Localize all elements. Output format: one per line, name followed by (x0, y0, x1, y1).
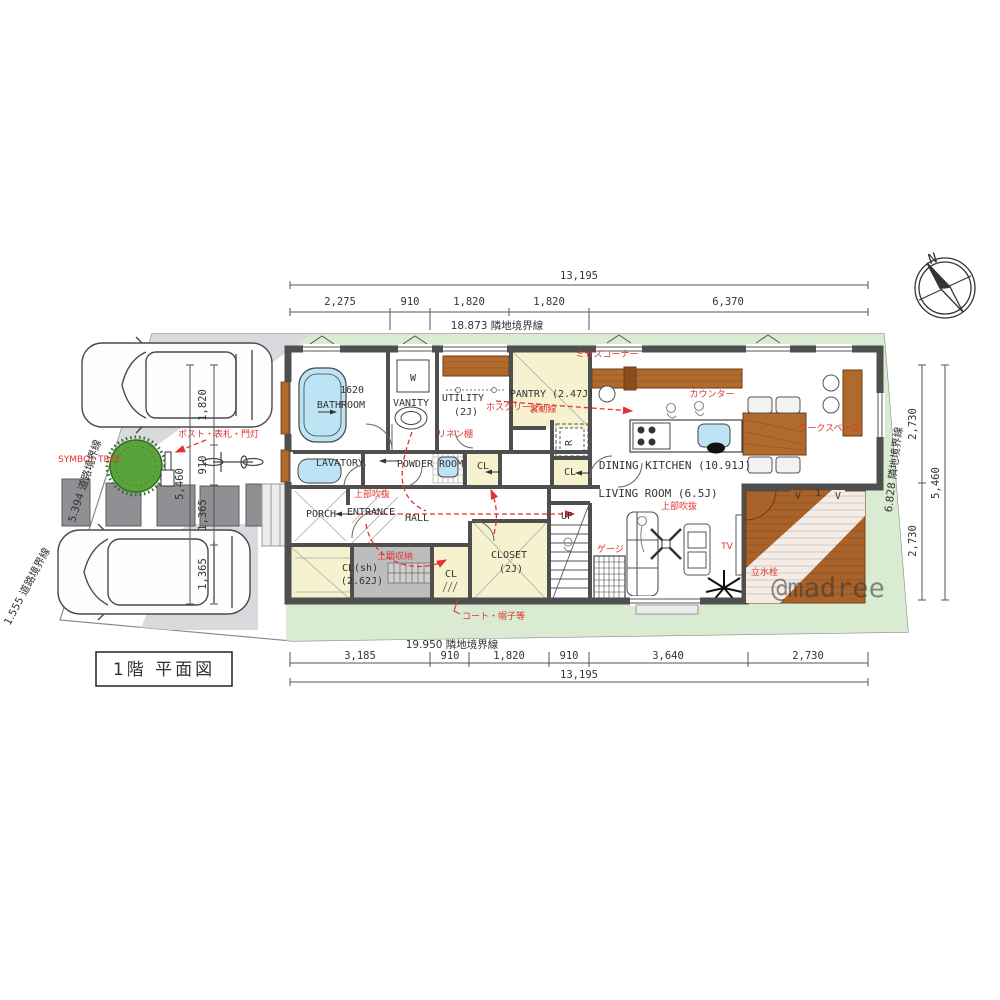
bottom-dims: 19.950 隣地境界線 3,185 910 1,820 910 3,640 2… (290, 638, 868, 686)
car-top (82, 337, 272, 433)
bottom-seg4: 3,640 (652, 650, 684, 662)
utility-shelf (443, 356, 509, 376)
watermark: @madree (771, 573, 885, 604)
drawing-title-text: 1階 平面図 (113, 660, 215, 680)
porch-label: PORCH (306, 509, 336, 520)
utility-label: UTILITY (442, 393, 484, 404)
mrs-chair (599, 386, 615, 402)
dining-table (743, 413, 806, 455)
left-dim-seg1: 910 (197, 456, 209, 475)
closet-label: CLOSET (491, 550, 527, 561)
top-dims: 13,195 2,275 910 1,820 1,820 6,370 18.87… (290, 270, 868, 332)
car-bottom (58, 524, 250, 620)
bathroom-label: BATHROOM (317, 400, 365, 411)
left-dim-seg2: 1,365 (197, 499, 209, 531)
left-dim-overall: 5,460 (174, 468, 186, 500)
kettle (707, 443, 725, 454)
west-louvers (281, 382, 289, 482)
clsh-size: (2.62J) (341, 576, 383, 587)
coat-hat-label: コート・帽子等 (462, 610, 525, 622)
void-entrance-label: 上部吹抜 (354, 488, 390, 500)
doma-storage-label: 土間収納 (377, 550, 413, 562)
floor-plan-canvas: SYMBOL TREE ポスト・表札・門灯 5.394 道路境界線 1.555 … (0, 0, 1000, 1000)
bottom-seg0: 3,185 (344, 650, 376, 662)
bathroom-size: 1620 (340, 385, 364, 396)
deck-mark-0: V (795, 491, 801, 502)
top-overall: 13,195 (560, 270, 598, 282)
terrace-step (636, 605, 698, 614)
right-overall: 5,460 (930, 467, 942, 499)
back-line-label: 裏動線 (529, 403, 556, 415)
top-seg0: 2,275 (324, 296, 356, 308)
living-label: LIVING ROOM (6.5J) (598, 487, 717, 500)
deck-mark-2: V (835, 491, 841, 502)
bottom-seg2: 1,820 (493, 650, 525, 662)
mrs-corner-label: ミセスコーナー (575, 349, 638, 360)
right-seg1: 2,730 (907, 525, 919, 557)
cl-coat-label: CL (445, 569, 457, 580)
counter-label: カウンター (689, 389, 734, 400)
washer-label: W (410, 373, 417, 384)
hall-label: HALL (405, 513, 429, 524)
workspace-label: ワークスペース (798, 423, 860, 434)
pantry-label: PANTRY (2.47J) (510, 389, 594, 400)
lavatory-label: LAVATORY (316, 458, 364, 469)
mrs-counter (592, 369, 742, 388)
top-seg2: 1,820 (453, 296, 485, 308)
clsh-label: CL(sh) (342, 563, 378, 574)
sofa (627, 512, 658, 596)
top-seg4: 6,370 (712, 296, 744, 308)
stairs-up-label: UP (561, 511, 573, 522)
fridge-label: R (564, 439, 575, 446)
closet-size: (2J) (499, 564, 523, 575)
void-living-label: 上部吹抜 (661, 500, 697, 512)
bottom-seg5: 2,730 (792, 650, 824, 662)
vanity-basin (395, 407, 427, 429)
deck-mark-1: 1 (815, 488, 821, 499)
approach-steps (262, 484, 288, 546)
road-boundary-lower: 1.555 道路境界線 (1, 545, 53, 627)
top-boundary: 18.873 隣地境界線 (451, 319, 544, 332)
workspace-stool-1 (823, 375, 839, 391)
bottom-seg1: 910 (441, 650, 460, 662)
tv-label: TV (720, 542, 733, 552)
right-seg0: 2,730 (907, 408, 919, 440)
compass: N (915, 250, 975, 318)
drawing-title: 1階 平面図 (96, 652, 232, 686)
left-dim-seg3: 1,365 (197, 558, 209, 590)
cl-powder-label: CL (477, 461, 489, 472)
top-seg3: 1,820 (533, 296, 565, 308)
cl-fridge-label: CL (564, 467, 576, 478)
cage-label: ゲージ (597, 543, 624, 555)
dining-label: DINING KITCHEN (10.91J) (599, 459, 751, 472)
vanity-label: VANITY (393, 398, 429, 409)
linen-shelf-label: リネン棚 (437, 428, 473, 440)
bottom-seg3: 910 (560, 650, 579, 662)
entrance-label: ENTRANCE (347, 507, 395, 518)
kitchen-island (630, 420, 742, 454)
coffee-table (684, 524, 710, 575)
powder-label: POWDER ROOM (397, 459, 463, 470)
bottom-overall: 13,195 (560, 669, 598, 681)
top-seg1: 910 (401, 296, 420, 308)
utility-size: (2J) (454, 407, 478, 418)
workspace-stool-2 (823, 397, 839, 413)
left-dim-seg0: 1,820 (197, 389, 209, 421)
pet-cage (594, 556, 625, 600)
